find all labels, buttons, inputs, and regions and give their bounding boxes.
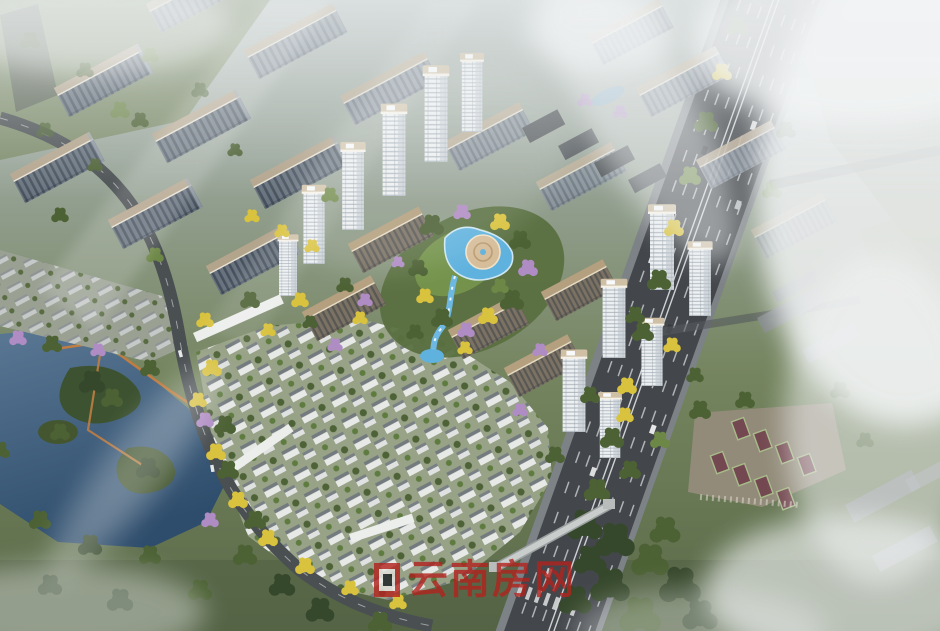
site-logo-icon [374,563,400,597]
aerial-render-screenshot: 云南房网 [0,0,940,631]
rendered-scene [0,0,940,631]
watermark-text: 云南房网 [408,560,576,600]
watermark: 云南房网 [374,560,576,600]
